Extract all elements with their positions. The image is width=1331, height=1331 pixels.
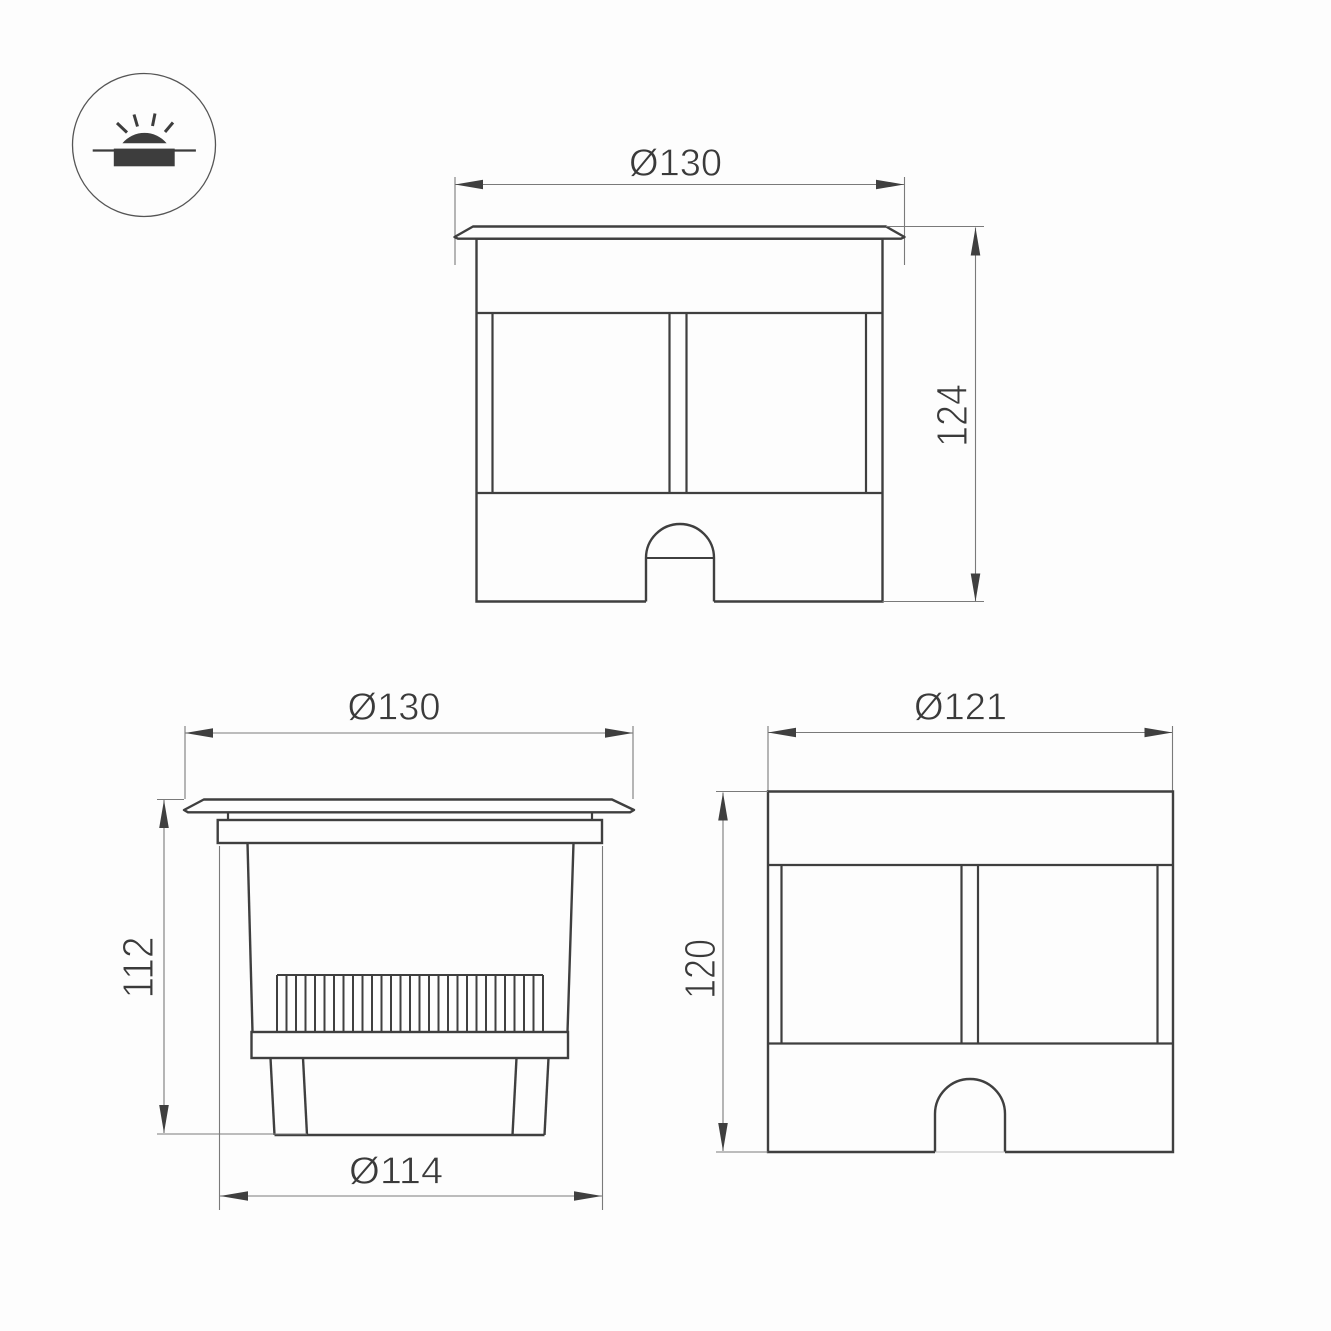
svg-text:112: 112 (114, 937, 163, 999)
svg-text:Ø130: Ø130 (348, 687, 441, 729)
svg-text:124: 124 (928, 384, 977, 447)
svg-text:120: 120 (676, 939, 725, 999)
svg-text:Ø114: Ø114 (349, 1151, 443, 1193)
svg-text:Ø121: Ø121 (914, 687, 1007, 729)
svg-text:Ø130: Ø130 (629, 143, 722, 185)
